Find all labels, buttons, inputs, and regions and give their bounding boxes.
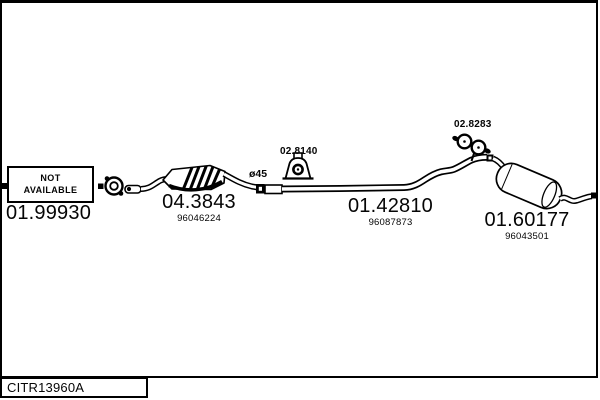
- front-clamp-icon: [125, 186, 141, 194]
- part-block-rear-silencer: 01.60177 96043501: [483, 210, 571, 242]
- part-label-rear-silencer[interactable]: 01.60177: [483, 210, 571, 230]
- part-block-centre-pipe: 01.42810 96087873: [346, 196, 435, 228]
- part-label-front-pipe[interactable]: 01.99930: [6, 203, 91, 223]
- exhaust-diagram-page: NOT AVAILABLE 01.99930 04.3843 96046224 …: [0, 0, 600, 400]
- catalytic-converter-drawing: [163, 164, 225, 190]
- sleeve-clamp-icon: [256, 184, 282, 194]
- oe-number-centre-pipe: 96087873: [346, 218, 435, 228]
- not-available-box: NOT AVAILABLE: [7, 166, 94, 203]
- reference-code: CITR13960A: [7, 380, 84, 395]
- not-available-line1: NOT: [40, 173, 60, 185]
- oe-number-catalytic-converter: 96046224: [160, 214, 238, 224]
- part-label-catalytic-converter[interactable]: 04.3843: [160, 192, 238, 212]
- front-pipe-drawing: [141, 179, 166, 189]
- front-flange-icon: [98, 176, 123, 196]
- part-block-catalytic-converter: 04.3843 96046224: [160, 192, 238, 224]
- part-label-mid-hanger[interactable]: 02.8140: [280, 147, 318, 157]
- part-label-rear-hanger[interactable]: 02.8283: [454, 120, 492, 130]
- not-available-line2: AVAILABLE: [24, 185, 78, 197]
- rear-silencer-drawing: [492, 159, 566, 213]
- centre-pipe-drawing: [282, 157, 487, 189]
- tailpipe-drawing: [560, 193, 597, 201]
- mid-hanger-icon: [283, 153, 314, 179]
- reference-code-box: CITR13960A: [0, 377, 148, 398]
- oe-number-rear-silencer: 96043501: [483, 232, 571, 242]
- pipe-diameter-label: ø45: [249, 169, 267, 180]
- part-label-centre-pipe[interactable]: 01.42810: [346, 196, 435, 216]
